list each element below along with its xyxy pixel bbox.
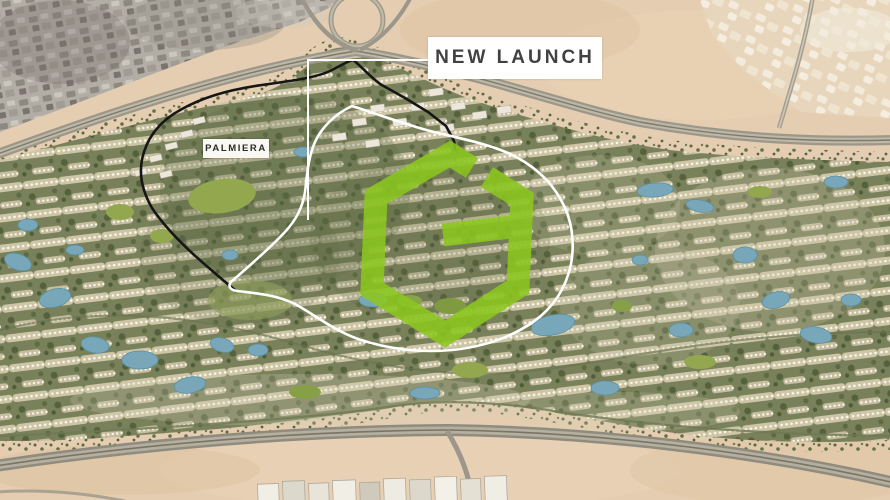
palmiera-label-text: PALMIERA bbox=[205, 143, 267, 154]
new-launch-label: NEW LAUNCH bbox=[428, 37, 602, 79]
masterplan-screenshot: NEW LAUNCH PALMIERA bbox=[0, 0, 890, 500]
new-launch-label-text: NEW LAUNCH bbox=[435, 47, 595, 69]
palmiera-label: PALMIERA bbox=[203, 139, 269, 158]
